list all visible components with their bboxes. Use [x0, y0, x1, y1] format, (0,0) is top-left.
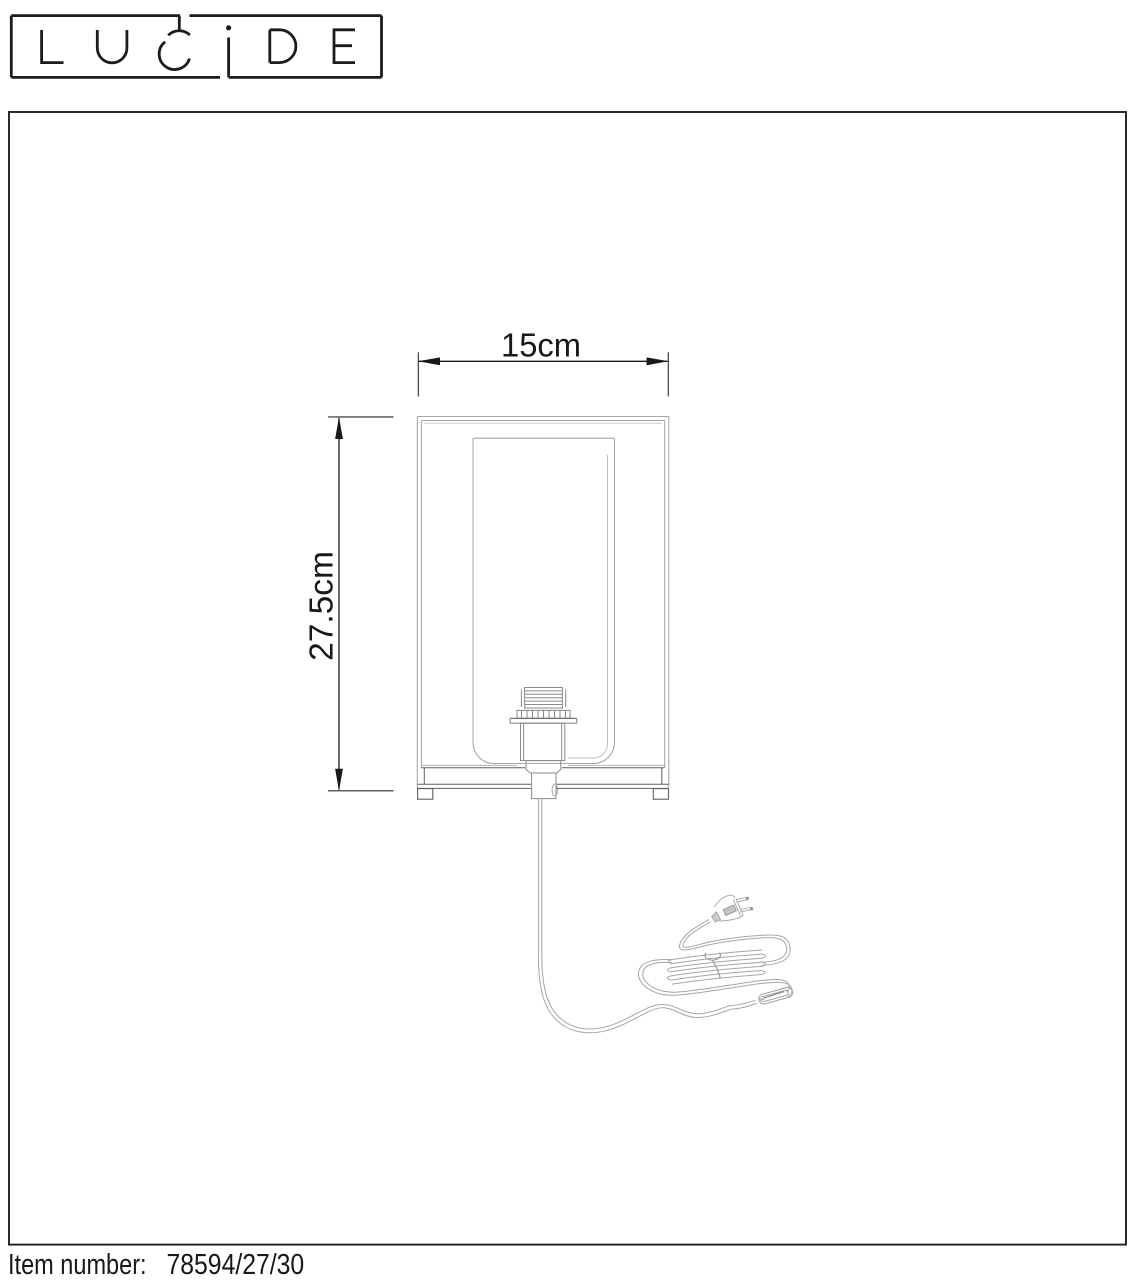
svg-text:15cm: 15cm	[501, 328, 581, 365]
svg-text:78594/27/30: 78594/27/30	[167, 1249, 305, 1280]
svg-text:27.5cm: 27.5cm	[304, 551, 341, 661]
svg-text:Item number:: Item number:	[8, 1249, 147, 1280]
